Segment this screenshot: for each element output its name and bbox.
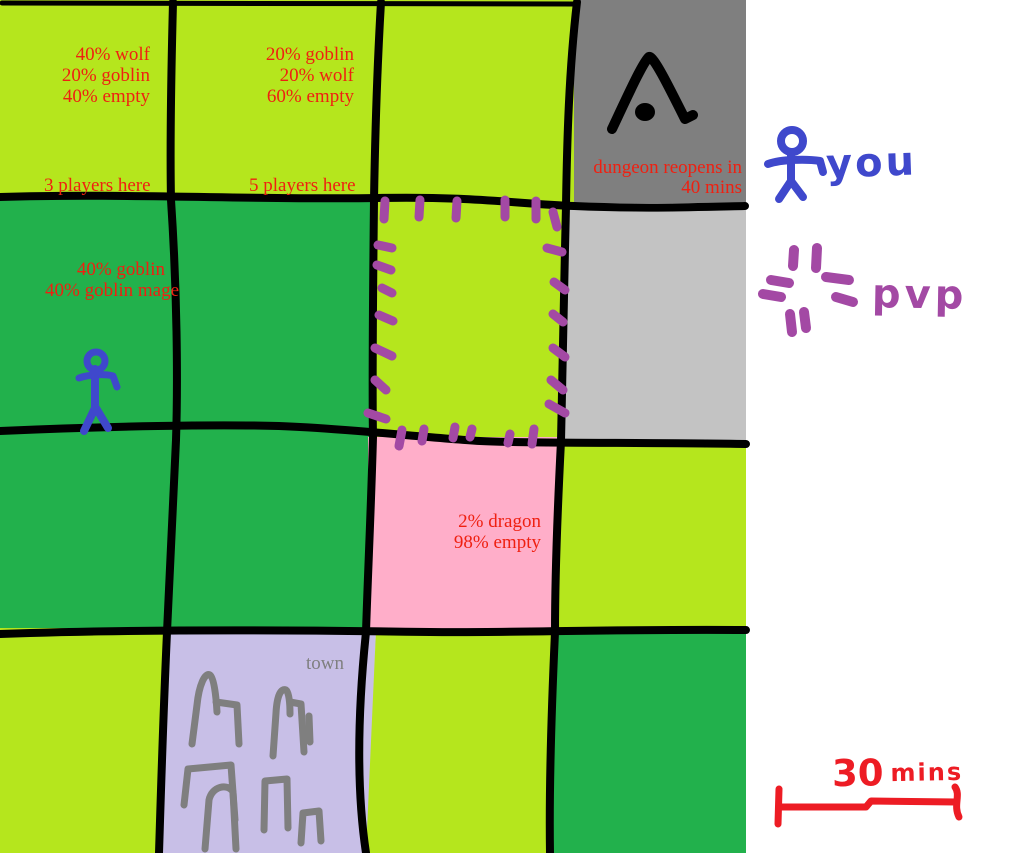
legend-pvp-mark bbox=[771, 280, 789, 283]
legend-you-label: you bbox=[825, 138, 918, 187]
legend-pvp-mark bbox=[793, 250, 794, 266]
zone-dragon-stat-1: 2% dragon bbox=[421, 511, 541, 532]
legend-pvp-mark bbox=[763, 294, 781, 297]
dungeon-status-line-2: 40 mins bbox=[582, 178, 742, 198]
dungeon-status-line-1: dungeon reopens in bbox=[582, 158, 742, 178]
zone-north-stat-2: 20% wolf bbox=[234, 65, 354, 86]
scale-bar-right-tick bbox=[955, 787, 959, 817]
pvp-border-tick bbox=[553, 314, 563, 322]
pvp-border-tick bbox=[378, 245, 392, 248]
pvp-border-tick bbox=[553, 212, 557, 227]
map-cell-r1c3 bbox=[376, 0, 580, 206]
zone-northwest-players: 3 players here bbox=[44, 175, 151, 197]
pvp-border-tick bbox=[532, 429, 534, 444]
zone-northwest-stats: 40% wolf 20% goblin 40% empty bbox=[30, 44, 150, 107]
legend-pvp-mark bbox=[836, 297, 853, 302]
zone-north-stat-3: 60% empty bbox=[234, 86, 354, 107]
zone-dragon-stats: 2% dragon 98% empty bbox=[421, 511, 541, 553]
scale-bar-left-tick bbox=[778, 789, 779, 824]
pvp-border-tick bbox=[419, 200, 420, 217]
zone-northwest-stat-2: 20% goblin bbox=[30, 65, 150, 86]
pvp-border-tick bbox=[547, 248, 562, 252]
pvp-border-tick bbox=[384, 201, 385, 219]
zone-north-stats: 20% goblin 20% wolf 60% empty bbox=[234, 44, 354, 107]
legend-pvp-mark bbox=[826, 277, 849, 280]
map-cell-west bbox=[0, 197, 178, 434]
scale-value: 30 bbox=[832, 756, 884, 791]
legend-you-figure bbox=[768, 130, 823, 199]
map-cell-r4c1 bbox=[0, 628, 168, 853]
zone-dragon-stat-2: 98% empty bbox=[421, 532, 541, 553]
scale-bar-line bbox=[780, 801, 956, 807]
map-cell-r3c1 bbox=[0, 426, 174, 634]
scale-unit: mins bbox=[890, 760, 963, 785]
legend-you-figure-legs bbox=[779, 181, 803, 199]
map-cell-r3c4 bbox=[558, 442, 746, 634]
pvp-border-tick bbox=[382, 288, 392, 293]
pvp-border-tick bbox=[368, 413, 386, 419]
map-cell-pvp-zone bbox=[371, 201, 569, 442]
dungeon-entrance-blob bbox=[635, 103, 655, 121]
zone-west-stats: 40% goblin 40% goblin mage bbox=[45, 259, 165, 301]
map-cell-r4c3 bbox=[366, 630, 558, 853]
legend-pvp-mark bbox=[804, 312, 806, 328]
town-label: town bbox=[306, 653, 344, 675]
map-canvas bbox=[0, 0, 1015, 853]
pvp-border-tick bbox=[377, 265, 391, 270]
grid-line-h3 bbox=[0, 630, 746, 634]
zone-west-stat-2: 40% goblin mage bbox=[45, 280, 165, 301]
legend-pvp-mark bbox=[790, 314, 792, 332]
pvp-border-tick bbox=[508, 434, 510, 443]
legend-pvp-label: pvp bbox=[872, 271, 968, 319]
dungeon-status: dungeon reopens in 40 mins bbox=[582, 158, 742, 198]
zone-north-stat-1: 20% goblin bbox=[234, 44, 354, 65]
legend-pvp-mark bbox=[816, 248, 817, 268]
zone-west-stat-1: 40% goblin bbox=[45, 259, 165, 280]
map-cell-r3c2 bbox=[168, 426, 374, 634]
legend-pvp-marks bbox=[763, 248, 853, 332]
game-map-screenshot: 40% wolf 20% goblin 40% empty 3 players … bbox=[0, 0, 1015, 853]
pvp-border-tick bbox=[456, 201, 457, 218]
map-cell-r2c2 bbox=[172, 197, 382, 434]
map-cell-closed bbox=[563, 203, 746, 445]
grid-line-top bbox=[2, 3, 576, 4]
legend-scale-label: 30 mins bbox=[832, 755, 964, 791]
map-cell-r4c4 bbox=[553, 630, 746, 853]
pvp-border-tick bbox=[379, 315, 393, 321]
zone-northwest-stat-3: 40% empty bbox=[30, 86, 150, 107]
zone-north-players: 5 players here bbox=[249, 175, 356, 197]
pvp-border-tick bbox=[422, 429, 424, 441]
legend-you-figure-arms bbox=[768, 160, 823, 172]
pvp-border-tick bbox=[453, 427, 455, 438]
pvp-border-tick bbox=[399, 430, 402, 446]
pvp-border-tick bbox=[470, 429, 472, 437]
zone-northwest-stat-1: 40% wolf bbox=[30, 44, 150, 65]
